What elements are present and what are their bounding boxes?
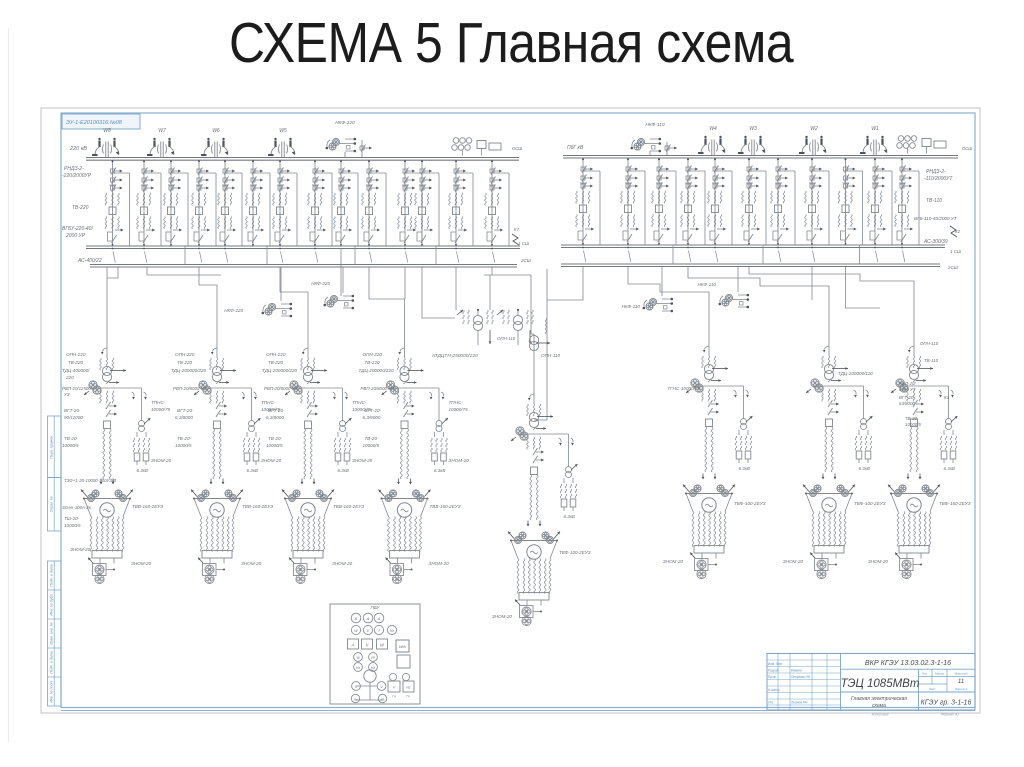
svg-text:ТВВ-160-2ЕУЗ: ТВВ-160-2ЕУЗ (242, 504, 273, 509)
svg-text:10000/5: 10000/5 (175, 443, 192, 448)
svg-text:63/8000: 63/8000 (899, 401, 915, 406)
svg-text:АТДЦТН-250000/220: АТДЦТН-250000/220 (431, 353, 478, 359)
svg-text:6.3кВ: 6.3кВ (434, 468, 445, 473)
svg-text:ЗНОМ-20: ЗНОМ-20 (151, 458, 172, 463)
svg-text:Масштаб: Масштаб (955, 672, 968, 676)
svg-text:РВП-20/8000 УЗ: РВП-20/8000 УЗ (264, 386, 297, 391)
svg-text:6,3/8000: 6,3/8000 (175, 415, 193, 420)
svg-text:ВГТ-20-: ВГТ-20- (365, 408, 382, 413)
svg-text:W1: W1 (871, 126, 879, 132)
svg-text:Утв.: Утв. (768, 700, 774, 704)
svg-text:W4: W4 (709, 126, 717, 132)
svg-text:A: A (351, 643, 355, 648)
svg-text:11: 11 (958, 679, 964, 685)
svg-text:ВГБУ-220-40/: ВГБУ-220-40/ (62, 226, 93, 232)
svg-text:Иванов: Иванов (791, 668, 802, 672)
svg-text:ОПН-220: ОПН-220 (66, 352, 86, 357)
svg-text:ТВ-20-: ТВ-20- (177, 436, 192, 441)
svg-text:-110/2000УТ: -110/2000УТ (924, 176, 953, 182)
svg-text:kWh: kWh (399, 645, 406, 649)
svg-text:ТГНС-10000/75: ТГНС-10000/75 (667, 386, 700, 391)
svg-text:РВП-20/12500: РВП-20/12500 (62, 386, 91, 391)
svg-text:ОПН-220: ОПН-220 (175, 352, 195, 357)
svg-text:6.3кВ: 6.3кВ (944, 466, 955, 471)
svg-text:2СШ: 2СШ (947, 265, 959, 270)
svg-text:ВКР КГЭУ 13.03.02.3-1-16: ВКР КГЭУ 13.03.02.3-1-16 (865, 658, 951, 667)
svg-text:W7: W7 (158, 128, 166, 134)
svg-text:ВГТ-20-: ВГТ-20- (64, 408, 81, 413)
svg-text:РВП-20/8000 УЗ: РВП-20/8000 УЗ (361, 386, 394, 391)
svg-text:ТВ-220: ТВ-220 (72, 205, 89, 211)
svg-text:ТПНС-: ТПНС- (261, 400, 276, 405)
svg-text:ТВФ-100-2ЕУЗ: ТВФ-100-2ЕУЗ (854, 501, 886, 506)
svg-text:ЗНОМ-20: ЗНОМ-20 (429, 561, 450, 566)
svg-text:РНДЗ-2-: РНДЗ-2- (926, 169, 946, 175)
svg-text:6,3/8000: 6,3/8000 (363, 415, 381, 420)
svg-text:НКФ-110: НКФ-110 (645, 122, 665, 128)
svg-text:10000/75: 10000/75 (151, 407, 171, 412)
svg-text:ТВ-20-: ТВ-20- (905, 416, 919, 421)
svg-text:Hz: Hz (390, 629, 394, 633)
svg-text:Hz: Hz (371, 666, 375, 670)
svg-text:ПбГ кВ: ПбГ кВ (567, 145, 584, 151)
svg-text:ТПНС-: ТПНС- (352, 400, 367, 405)
svg-text:НКФ-110: НКФ-110 (622, 304, 641, 309)
svg-text:6.3кВ: 6.3кВ (137, 468, 148, 473)
svg-text:6.3кВ: 6.3кВ (338, 468, 349, 473)
svg-text:НКФ-110: НКФ-110 (698, 282, 717, 287)
svg-text:ТВ-110: ТВ-110 (926, 198, 942, 204)
svg-text:6.3кВ: 6.3кВ (739, 466, 750, 471)
svg-text:V: V (393, 686, 396, 690)
svg-text:V: V (367, 629, 370, 633)
svg-text:220 кВ: 220 кВ (69, 146, 87, 152)
svg-text:Инв. № дубл.: Инв. № дубл. (50, 593, 54, 615)
svg-text:АС-300/39: АС-300/39 (923, 239, 948, 245)
svg-text:6,3/8000: 6,3/8000 (266, 415, 284, 420)
svg-text:10000/75: 10000/75 (449, 407, 469, 412)
svg-text:10000/5: 10000/5 (905, 422, 921, 427)
svg-text:РВП-20/8000 УЗ: РВП-20/8000 УЗ (173, 386, 206, 391)
svg-text:ВГТ-20-: ВГТ-20- (268, 408, 285, 413)
svg-text:Инв. № подл.: Инв. № подл. (50, 680, 54, 702)
svg-text:ОСШ: ОСШ (962, 146, 972, 151)
svg-text:ЗНОМ-20: ЗНОМ-20 (449, 458, 470, 463)
svg-text:90/11000: 90/11000 (64, 415, 83, 420)
svg-text:КГЭУ гр. 3-1-16: КГЭУ гр. 3-1-16 (921, 700, 972, 707)
svg-text:ТЗФ+1-20-10000-300УЗ/В: ТЗФ+1-20-10000-300УЗ/В (64, 478, 116, 483)
svg-text:К3: К3 (944, 395, 950, 400)
svg-text:ТВВ-160-2ЕУЗ: ТВВ-160-2ЕУЗ (430, 504, 461, 509)
svg-text:ТДЦ-200000/220: ТДЦ-200000/220 (262, 368, 298, 373)
svg-text:ТВ-220: ТВ-220 (177, 360, 193, 365)
svg-text:ОПН-110: ОПН-110 (541, 353, 561, 358)
svg-text:ТДЦ-200000/220: ТДЦ-200000/220 (171, 368, 207, 373)
svg-text:Изм. Лист: Изм. Лист (768, 662, 783, 666)
svg-text:Hz: Hz (406, 686, 410, 690)
svg-text:ПБУ: ПБУ (371, 605, 381, 610)
svg-text:Подп. и дата: Подп. и дата (50, 564, 54, 587)
svg-text:W3: W3 (749, 126, 757, 132)
svg-text:6.3кВ: 6.3кВ (247, 468, 258, 473)
svg-text:ЗНОМ-20: ЗНОМ-20 (70, 547, 91, 552)
svg-text:W6: W6 (212, 128, 220, 134)
svg-text:ТВ-110: ТВ-110 (924, 358, 939, 363)
svg-text:НКФ-220: НКФ-220 (311, 281, 330, 286)
svg-text:ТЭЦ 1085МВт: ТЭЦ 1085МВт (841, 678, 920, 690)
svg-text:ЗНОМ-20: ЗНОМ-20 (492, 614, 513, 619)
svg-text:ЗНОМ-20: ЗНОМ-20 (131, 561, 152, 566)
svg-text:АС-400/22: АС-400/22 (77, 258, 102, 264)
svg-text:Разраб.: Разраб. (768, 668, 780, 672)
svg-text:ЗНОМ-20: ЗНОМ-20 (663, 559, 684, 564)
svg-text:Перв. примен.: Перв. примен. (50, 435, 54, 459)
svg-text:ЗНОМ-20: ЗНОМ-20 (241, 561, 262, 566)
svg-text:А: А (354, 616, 358, 621)
svg-text:W: W (356, 656, 360, 660)
svg-text:ТВВ-160-2ЕУЗ: ТВВ-160-2ЕУЗ (333, 504, 364, 509)
svg-text:ЗНОМ-20: ЗНОМ-20 (352, 458, 373, 463)
svg-text:10000/5: 10000/5 (62, 443, 79, 448)
svg-text:КВ: КВ (381, 698, 385, 702)
svg-text:Лист: Лист (929, 687, 936, 691)
svg-text:Масса: Масса (935, 672, 944, 676)
svg-text:РНДЗ-2-: РНДЗ-2- (64, 166, 84, 172)
svg-text:ТПНС-: ТПНС- (151, 400, 166, 405)
svg-text:ВГТ-20-: ВГТ-20- (177, 408, 194, 413)
svg-text:W: W (380, 643, 385, 648)
svg-text:10000/5: 10000/5 (363, 443, 380, 448)
svg-text:220: 220 (65, 375, 74, 380)
svg-text:ЗНОМ-20: ЗНОМ-20 (783, 559, 804, 564)
svg-text:W2: W2 (810, 126, 818, 132)
svg-text:ТПНС-: ТПНС- (449, 400, 464, 405)
svg-text:ВГБ-110-40/2000 УТ: ВГБ-110-40/2000 УТ (914, 216, 958, 221)
svg-text:V: V (366, 643, 370, 648)
svg-text:ТДЦ-200000/110: ТДЦ-200000/110 (838, 371, 873, 376)
svg-text:Лит.: Лит. (922, 672, 928, 676)
svg-text:Справ. №: Справ. № (49, 496, 53, 512)
svg-text:6.3кВ: 6.3кВ (859, 466, 870, 471)
svg-text:ОПН-220: ОПН-220 (266, 352, 286, 357)
svg-text:Гц: Гц (406, 694, 410, 698)
svg-text:10000/5: 10000/5 (64, 523, 81, 528)
svg-text:УЗ: УЗ (64, 392, 70, 397)
svg-text:10000/5: 10000/5 (266, 443, 283, 448)
svg-text:Главная электрическая: Главная электрическая (851, 696, 907, 702)
svg-text:V: V (380, 685, 383, 689)
svg-text:1 СШ: 1 СШ (518, 241, 530, 246)
svg-text:ТВ-20-: ТВ-20- (64, 436, 79, 441)
svg-text:ЗНОМ-20: ЗНОМ-20 (332, 561, 353, 566)
svg-text:НКФ-220: НКФ-220 (335, 120, 355, 126)
svg-text:6.3кВ: 6.3кВ (564, 514, 575, 519)
svg-text:ТШ-20-: ТШ-20- (64, 516, 80, 521)
svg-text:РВП-20/: РВП-20/ (899, 381, 916, 386)
svg-text:Hz: Hz (356, 666, 360, 670)
svg-text:Листов 1: Листов 1 (955, 687, 968, 691)
svg-text:Копировал: Копировал (872, 713, 889, 717)
svg-text:Подп. и дата: Подп. и дата (50, 651, 54, 674)
svg-text:-220/2000УР: -220/2000УР (62, 173, 92, 179)
svg-text:ЗНОМ-20: ЗНОМ-20 (261, 458, 282, 463)
svg-text:ОПН-110: ОПН-110 (497, 336, 516, 341)
svg-text:ОПН-220: ОПН-220 (363, 352, 383, 357)
svg-text:ТДЦ-400000/: ТДЦ-400000/ (62, 368, 90, 373)
svg-text:ОПН-110: ОПН-110 (920, 341, 939, 346)
svg-text:ТВФ-100-2ЕУЗ: ТВФ-100-2ЕУЗ (734, 501, 766, 506)
svg-text:А: А (377, 616, 381, 621)
svg-text:Петрова НН: Петрова НН (791, 675, 811, 679)
svg-text:ТВ-20-: ТВ-20- (365, 436, 380, 441)
svg-text:W: W (354, 629, 358, 633)
svg-text:Н.контр.: Н.контр. (768, 688, 780, 692)
svg-text:ВГТ-20-: ВГТ-20- (899, 395, 915, 400)
svg-text:Леонов ЛН: Леонов ЛН (790, 700, 808, 704)
svg-text:К7: К7 (514, 227, 520, 232)
svg-text:W8: W8 (103, 128, 111, 134)
svg-text:ЭУ-1-Е20100316.№08: ЭУ-1-Е20100316.№08 (66, 120, 123, 126)
svg-text:SGen-100А-2к: SGen-100А-2к (62, 505, 92, 510)
svg-text:Взам. инв. №: Взам. инв. № (50, 622, 54, 644)
svg-text:ЗНОМ-20: ЗНОМ-20 (868, 559, 889, 564)
svg-text:ТДЦ-200000/220: ТДЦ-200000/220 (359, 368, 395, 373)
svg-text:ТВФ-100-2ЕУЗ: ТВФ-100-2ЕУЗ (559, 550, 591, 555)
svg-text:схема: схема (872, 703, 886, 709)
svg-text:f: f (379, 629, 381, 633)
svg-text:А: А (366, 616, 370, 621)
svg-text:ТВ-220: ТВ-220 (268, 360, 284, 365)
svg-text:2000 УР: 2000 УР (65, 233, 86, 239)
svg-text:Гц: Гц (392, 694, 396, 698)
svg-text:НКФ-220: НКФ-220 (224, 308, 243, 313)
svg-text:2СШ: 2СШ (520, 258, 532, 263)
svg-text:W5: W5 (279, 128, 287, 134)
svg-text:ТВ-20-: ТВ-20- (268, 436, 283, 441)
svg-text:VР: VР (371, 656, 376, 660)
svg-text:8000 УТ: 8000 УТ (899, 387, 916, 392)
svg-text:ТВ-220: ТВ-220 (365, 360, 381, 365)
svg-text:ТВВ-160-2ЕУЗ: ТВВ-160-2ЕУЗ (132, 504, 163, 509)
svg-text:ТВ-220: ТВ-220 (68, 360, 84, 365)
svg-text:Пров.: Пров. (768, 675, 777, 679)
svg-text:ОСШ: ОСШ (512, 146, 522, 151)
svg-text:ТВФ-160-2ЕУЗ: ТВФ-160-2ЕУЗ (939, 501, 971, 506)
svg-text:1 СШ: 1 СШ (950, 249, 962, 254)
svg-text:Формат А1: Формат А1 (941, 713, 960, 717)
svg-text:Hz: Hz (354, 698, 358, 702)
